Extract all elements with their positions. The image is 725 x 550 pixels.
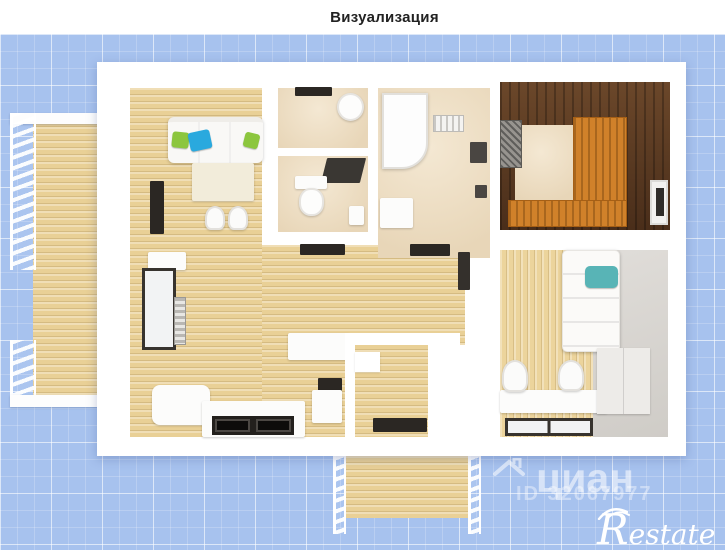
porch-deck: [345, 456, 468, 518]
dining-table: [192, 163, 254, 201]
burner: [215, 419, 250, 432]
balcony-deck: [33, 120, 103, 407]
door-opening: [410, 244, 450, 256]
wall-panel: [475, 185, 487, 198]
washbasin: [337, 93, 364, 121]
sauna-door: [650, 180, 668, 225]
vanity-counter: [321, 158, 366, 183]
closet: [438, 345, 470, 437]
wardrobe: [597, 348, 650, 414]
living-room-window: [142, 268, 176, 350]
restate-logo: Restate: [597, 508, 725, 550]
doormat: [373, 418, 427, 432]
dining-chair: [228, 206, 248, 230]
sauna-door-pane: [656, 188, 664, 216]
hall-wall-left: [345, 333, 355, 437]
kitchen-cabinet: [312, 390, 342, 423]
sauna-bench-bottom: [508, 200, 627, 227]
balcony-rail-bottom: [10, 395, 103, 407]
shower-cabin: [382, 93, 428, 169]
restate-logo-swoosh: [597, 506, 637, 520]
floor-plan: [97, 62, 686, 456]
desk-chair: [558, 360, 584, 391]
listing-id-watermark: ID 32067977: [516, 483, 653, 506]
sauna: [500, 82, 670, 230]
sauna-floor: [515, 125, 573, 203]
page-title: Визуализация: [330, 9, 439, 26]
door-panel: [458, 252, 470, 290]
bath-cabinet: [380, 198, 413, 228]
desk: [500, 390, 607, 413]
balcony-rail-lower: [10, 340, 36, 395]
balcony-rail-upper: [10, 113, 36, 270]
radiator: [174, 297, 186, 345]
tv-panel: [150, 181, 164, 234]
burner: [256, 419, 291, 432]
page-header: Визуализация: [0, 0, 725, 34]
cooktop: [212, 416, 294, 435]
door-opening: [300, 244, 345, 255]
mirror-shelf: [295, 87, 332, 96]
towel-ladder: [433, 115, 464, 132]
desk-chair: [502, 360, 528, 392]
sauna-heater: [500, 120, 522, 168]
bedroom-window: [505, 418, 593, 436]
wall-panel: [470, 142, 487, 163]
shoe-cabinet: [355, 352, 380, 372]
hall-wall-right: [428, 345, 438, 437]
toilet-bowl: [299, 188, 324, 216]
blueprint-background: циан ID 32067977 Restate: [0, 34, 725, 550]
dining-chair: [205, 206, 225, 230]
visualization-screenshot: Визуализация: [0, 0, 725, 550]
porch-rail-left: [333, 456, 346, 534]
small-sink: [349, 206, 364, 225]
kitchen-island: [288, 333, 350, 360]
porch-rail-right: [468, 456, 481, 534]
pillow-teal: [585, 266, 618, 288]
hall-wall-top: [345, 333, 460, 345]
